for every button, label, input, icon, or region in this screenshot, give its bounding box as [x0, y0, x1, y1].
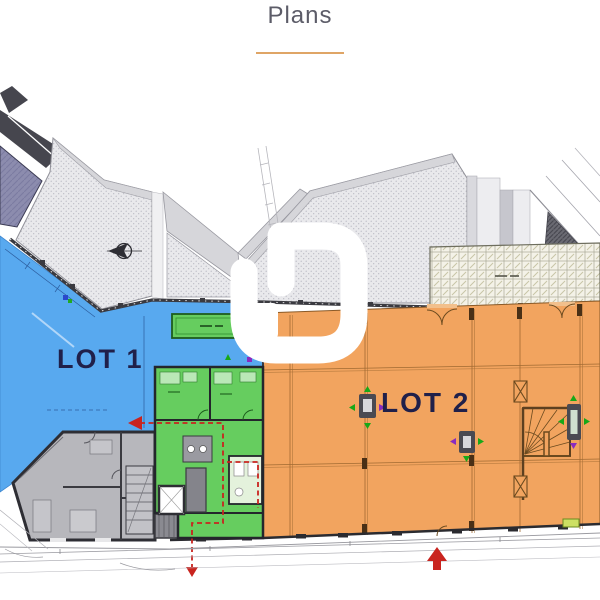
lot2-label: LOT 2 — [381, 387, 470, 418]
common-area — [155, 354, 263, 538]
kitchen-block — [183, 436, 212, 462]
sanitary-room — [229, 456, 262, 504]
pergola-trellis — [430, 243, 600, 308]
floor-plan-drawing: LOT 1 LOT 2 — [0, 0, 600, 600]
plans-page: LOT 1 LOT 2 Plans — [0, 0, 600, 600]
header: Plans — [0, 0, 600, 54]
stairs-apartment — [126, 466, 153, 534]
arrow-down-icon — [186, 567, 198, 577]
floor-plan: LOT 1 LOT 2 — [0, 0, 600, 600]
roof-hatched-triangle — [545, 212, 581, 247]
technical-room — [186, 468, 206, 512]
page-title: Plans — [0, 0, 600, 30]
title-underline — [256, 52, 344, 54]
lot1-label: LOT 1 — [57, 344, 144, 374]
elevator — [159, 486, 184, 514]
right-roof-structures — [467, 148, 600, 250]
